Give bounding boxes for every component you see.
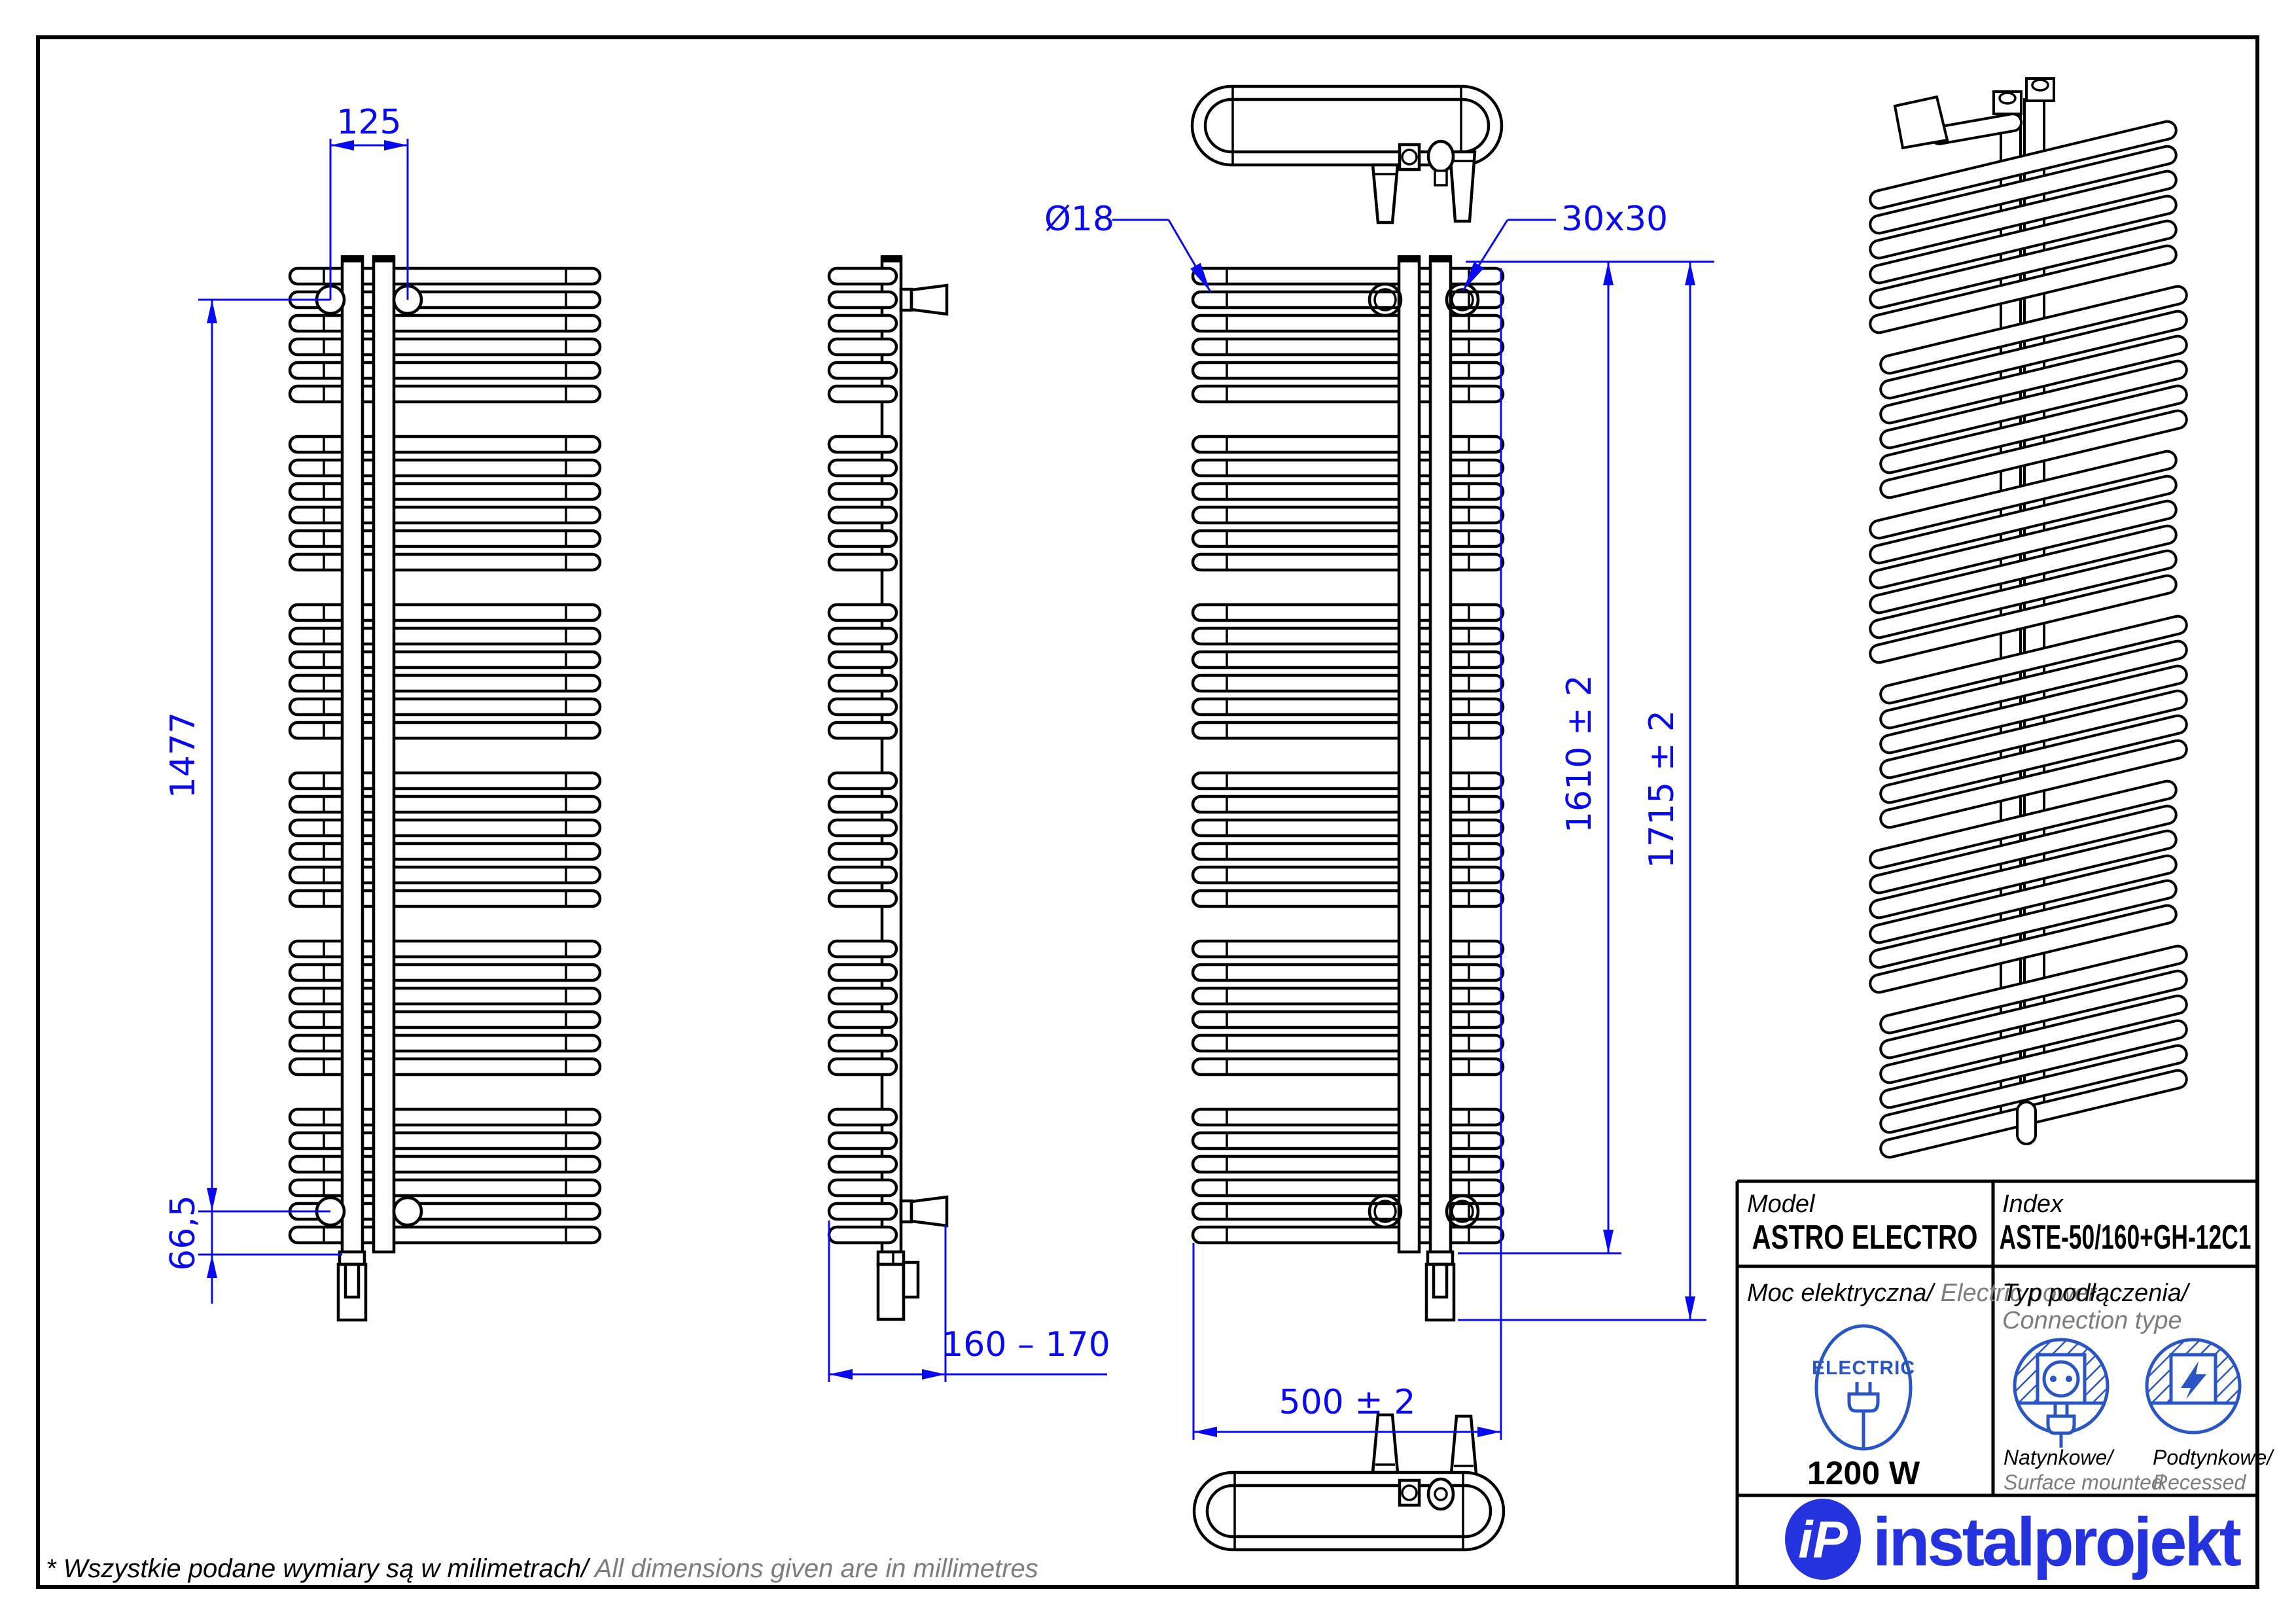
surface-label-pl-text: Natynkowe/: [2004, 1446, 2115, 1469]
collector-profile-text: 30x30: [1561, 200, 1668, 239]
height-total-text: 1715 ± 2: [1642, 710, 1682, 868]
recessed-label-pl-text: Podtynkowe/: [2153, 1446, 2274, 1469]
dimension-arrowhead: [207, 1188, 217, 1211]
leader-tube-diameter: Ø18: [1044, 200, 1216, 295]
air-vent: [1895, 97, 1947, 148]
power-label-pl: Moc elektryczna/: [1747, 1279, 1936, 1307]
surface-label-en-text: Surface mounted: [2004, 1471, 2164, 1494]
side-view: [829, 255, 947, 1319]
width-text: 500 ± 2: [1279, 1383, 1416, 1422]
connection-label-en-text: Connection type: [2002, 1307, 2182, 1334]
dimension-arrowhead: [1477, 1427, 1501, 1437]
bracket-height-text: 1477: [164, 712, 203, 798]
depth-range-text: 160 – 170: [942, 1325, 1110, 1364]
dimensions-note: * Wszystkie podane wymiary są w milimetr…: [46, 1554, 1038, 1583]
logo: iPinstalprojekt: [1785, 1499, 2241, 1580]
dimension-arrowhead: [829, 1369, 853, 1380]
monogram-text: iP: [1798, 1510, 1848, 1569]
recessed-label-en-text: Recessed: [2153, 1471, 2247, 1494]
dimension-arrowhead: [1603, 1230, 1614, 1253]
top-view: [1192, 86, 1502, 223]
index-label-text: Index: [2002, 1190, 2064, 1218]
surface-mounted-icon: [2015, 1339, 2108, 1448]
drawing-canvas: 125147766,5160 – 170500 ± 21610 ± 21715 …: [0, 0, 2296, 1623]
wall-bracket: [911, 1197, 947, 1226]
recessed-icon: [2147, 1339, 2240, 1433]
brand-text: instalprojekt: [1873, 1504, 2241, 1580]
footer-note: * Wszystkie podane wymiary są w milimetr…: [46, 1554, 1038, 1583]
bottom-offset-text: 66,5: [164, 1195, 203, 1271]
wall-bracket: [911, 285, 947, 314]
model-label-text: Model: [1747, 1190, 1816, 1218]
dimension-160-170: 160 – 170: [829, 1221, 1110, 1382]
dimension-arrowhead: [1685, 262, 1695, 285]
dimension-arrowhead: [207, 1255, 217, 1278]
electric-badge-text: ELECTRIC: [1812, 1357, 1915, 1379]
model-value-text: ASTRO ELECTRO: [1752, 1219, 1978, 1257]
tube-diameter-text: Ø18: [1044, 200, 1114, 239]
technical-drawing-sheet: 125147766,5160 – 170500 ± 21610 ± 21715 …: [0, 0, 2296, 1623]
dimension-arrowhead: [1603, 262, 1614, 285]
height-collector-text: 1610 ± 2: [1560, 675, 1599, 833]
isometric-view: [1868, 79, 2188, 1159]
electric-icon: ELECTRIC: [1812, 1326, 1915, 1449]
index-value-text: ASTE-50/160+GH-12C1: [2000, 1219, 2252, 1257]
bottom-view: [1194, 1415, 1504, 1550]
note-pl: * Wszystkie podane wymiary są w milimetr…: [46, 1554, 591, 1583]
front-view: [290, 255, 600, 1320]
dimension-arrowhead: [207, 300, 217, 323]
note-en: All dimensions given are in millimetres: [588, 1554, 1038, 1583]
dimension-arrowhead: [1685, 1296, 1695, 1320]
connection-label-pl-text: Typ podłączenia/: [2002, 1279, 2191, 1307]
dimension-arrowhead: [922, 1369, 945, 1380]
power-value-text: 1200 W: [1807, 1455, 1920, 1491]
front-view-dimensioned: [1193, 255, 1503, 1320]
dimension-arrowhead: [1193, 1427, 1217, 1437]
mounting-hole: [394, 1198, 421, 1225]
bracket-spacing-text: 125: [336, 103, 401, 142]
